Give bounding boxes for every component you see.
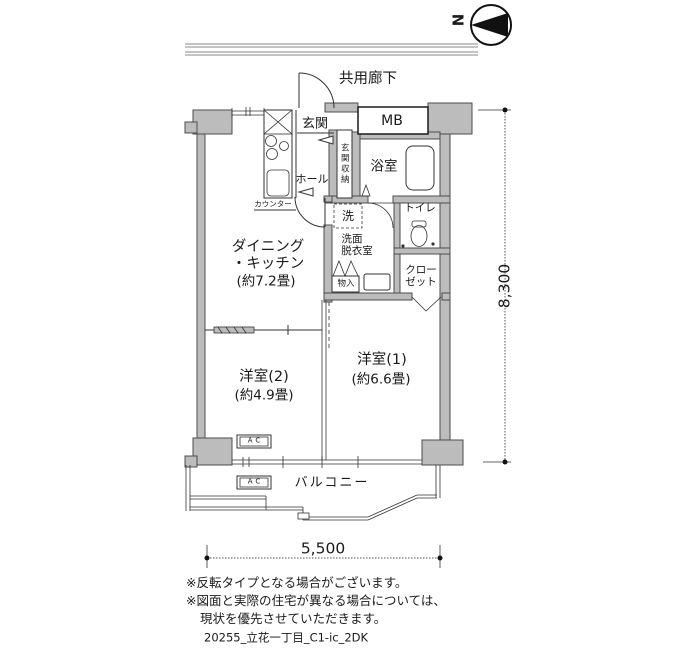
dk-label-line2: ・キッチン [232,257,305,272]
room1-label-line1: 洋室(1) [357,353,407,368]
dk-door [295,197,325,227]
compass-north-label: N [452,14,467,27]
bath-label: 浴室 [371,160,398,174]
plan-id-label: 20255_立花一丁目_C1-ic_2DK [204,632,368,644]
folding-door-icon [412,297,441,311]
hall-label: ホール [296,174,329,185]
balcony-label: バルコニー [295,477,370,490]
room-divider [322,300,329,460]
counter-label: カウンター [254,200,292,208]
dimension-height-label: 8,300 [497,264,513,308]
ac1-label: AC [245,438,264,445]
corridor-label: 共用廊下 [339,72,397,87]
bath-door-pivot-icon [362,185,370,196]
monoire-label: 物入 [337,280,354,289]
note-line1: ※反転タイプとなる場合がございます。 [186,577,407,590]
corridor-lines [185,44,478,55]
room1-label-line2: (約6.6畳) [351,373,410,387]
floorplan-canvas: N 共用廊下 玄関 MB 玄関収納 浴室 ホール カウンター 洗 トイレ 洗面 … [0,0,700,650]
washbasin-icon [364,274,390,290]
washer-label: 洗 [342,210,354,222]
note-line2: ※図面と実際の住宅が異なる場合については、 [186,595,446,608]
closet-door [412,297,441,311]
bathtub-icon [406,146,434,190]
closet-label-line2: ゼット [405,277,437,288]
kitchen-unit [254,110,296,210]
floor-step-icon [319,136,333,144]
ac2-label: AC [245,479,264,486]
genkan-storage-label: 玄関収納 [340,143,349,185]
closet-label-line1: クロー [405,265,437,276]
meter-box-label: MB [381,114,403,128]
compass-icon [471,5,511,45]
floor-step-icon [299,188,313,196]
toilet-label: トイレ [404,203,436,214]
note-line3: 現状を優先させていただきます。 [200,613,386,626]
floorplan-drawing [0,0,700,650]
room2-label-line2: (約4.9畳) [234,389,293,403]
washroom-label-line2: 脱衣室 [341,246,373,257]
dk-label-line3: (約7.2畳) [236,275,295,289]
toilet-fixtures [401,221,434,248]
genkan-label: 玄関 [302,118,328,131]
washroom-label-line1: 洗面 [342,234,363,245]
dk-label-line1: ダイニング [232,240,305,255]
toilet-tank-icon [412,221,426,227]
toilet-bowl-icon [411,226,427,247]
dimension-width-label: 5,500 [301,541,345,557]
room2-label-line1: 洋室(2) [239,370,289,385]
balcony-railing [186,465,440,520]
sliding-door [205,325,322,335]
folding-door-icon [333,261,358,276]
